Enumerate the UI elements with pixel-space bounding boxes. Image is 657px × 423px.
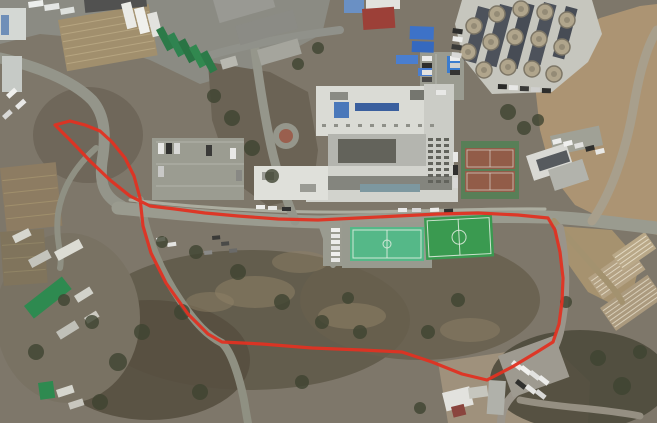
tree <box>342 292 354 304</box>
vehicle <box>422 70 432 75</box>
tree <box>421 325 435 339</box>
tree <box>590 350 606 366</box>
vehicle <box>331 240 340 244</box>
north-wing-windows <box>346 124 350 127</box>
north-wing-windows <box>334 124 338 127</box>
south-wing-teal-band <box>360 184 420 192</box>
vehicle-shape <box>398 208 407 212</box>
building-blue-small-top-shape <box>344 0 364 13</box>
building-west-edge-2 <box>2 56 22 92</box>
vehicle <box>331 252 340 256</box>
east-tower-windows <box>444 156 449 159</box>
vehicle <box>430 208 439 212</box>
vehicle-shape <box>158 166 164 177</box>
building-west-edge-blue-shape <box>1 15 9 35</box>
east-tower-windows <box>436 138 441 141</box>
south-facility-gray-building-shape <box>487 380 506 415</box>
vehicle-shape <box>422 63 432 68</box>
east-tower-windows <box>428 150 433 153</box>
tree <box>192 384 208 400</box>
vehicle <box>204 250 212 255</box>
farm-building-green-small <box>38 381 55 400</box>
soccer-field <box>424 214 494 260</box>
east-tower-windows <box>428 156 433 159</box>
west-wing-unit-2-shape <box>300 184 316 192</box>
field-terrace-west-1-shape <box>0 162 62 232</box>
rooftop-unit-1-shape <box>330 92 348 100</box>
building-west-edge-2-shape <box>2 56 22 92</box>
tree <box>58 294 70 306</box>
vehicle <box>436 90 446 95</box>
vehicle <box>453 152 458 162</box>
tree <box>244 140 260 156</box>
north-wing-windows <box>370 124 374 127</box>
tennis-court-north <box>465 148 515 169</box>
main-building-west-wing <box>254 166 328 200</box>
north-wing-windows <box>418 124 422 127</box>
north-wing-windows <box>382 124 386 127</box>
east-tower-windows <box>436 180 441 183</box>
vehicle-shape <box>331 252 340 256</box>
tree <box>224 110 240 126</box>
vehicle-shape <box>331 234 340 238</box>
tree <box>295 375 309 389</box>
building-blue-roof-2-shape <box>412 41 434 53</box>
vehicle-shape <box>422 77 432 82</box>
vehicle <box>450 70 460 75</box>
tree <box>353 325 367 339</box>
tree <box>92 394 108 410</box>
east-tower-windows <box>444 144 449 147</box>
courtyard-dark <box>338 139 396 163</box>
storage-tank-center <box>529 66 535 72</box>
vehicle-shape <box>422 56 432 61</box>
vehicle <box>282 207 291 211</box>
storage-tank-center <box>488 39 494 45</box>
storage-tank-center <box>512 34 518 40</box>
storage-tank-center <box>564 17 570 23</box>
tree <box>156 236 168 248</box>
vehicle <box>158 166 164 177</box>
vehicle-shape <box>453 165 458 175</box>
vehicle-shape <box>206 145 212 156</box>
east-tower-windows <box>436 162 441 165</box>
tree <box>109 353 127 371</box>
parking-lot-main-shape <box>152 138 244 200</box>
vehicle <box>166 143 172 154</box>
rooftop-solar-strip <box>355 103 399 111</box>
vehicle <box>422 77 432 82</box>
vehicle <box>331 258 340 262</box>
vehicle <box>256 205 265 209</box>
vehicle <box>331 228 340 232</box>
south-facility-gray-building <box>487 380 506 415</box>
building-red-roof-shape <box>362 7 395 30</box>
vehicle-shape <box>331 246 340 250</box>
satellite-image <box>0 0 657 423</box>
east-tower-windows <box>444 168 449 171</box>
east-tower-windows <box>436 144 441 147</box>
east-tower-windows <box>444 138 449 141</box>
vehicle <box>422 56 432 61</box>
vehicle-shape <box>498 84 507 89</box>
east-tower-windows <box>444 180 449 183</box>
vehicle-shape <box>256 205 265 209</box>
vehicle-shape <box>331 240 340 244</box>
tree <box>312 42 324 54</box>
vehicle-shape <box>436 90 446 95</box>
tree <box>292 58 304 70</box>
parking-lot-main <box>152 138 244 200</box>
storage-tank-center <box>471 23 477 29</box>
east-tower-windows <box>444 150 449 153</box>
tree <box>134 324 150 340</box>
building-west-edge-blue <box>1 15 9 35</box>
vehicle <box>221 241 229 246</box>
tree <box>230 264 246 280</box>
east-tower-windows <box>428 144 433 147</box>
vehicle-shape <box>430 208 439 212</box>
rooftop-unit-1 <box>330 92 348 100</box>
building-blue-small-top <box>344 0 364 13</box>
vehicle-shape <box>520 86 529 91</box>
storage-tank-center <box>536 36 542 42</box>
vehicle-shape <box>531 87 540 92</box>
aerial-photo <box>0 0 657 423</box>
storage-tank-center <box>505 64 511 70</box>
vehicle-shape <box>331 228 340 232</box>
vehicle <box>398 208 407 212</box>
vehicle <box>206 145 212 156</box>
east-tower-windows <box>436 168 441 171</box>
south-wing-teal-band-shape <box>360 184 420 192</box>
storage-tank-center <box>518 6 524 12</box>
vehicle <box>230 148 236 159</box>
vehicle-shape <box>229 248 237 253</box>
storage-tank-center <box>551 71 557 77</box>
dry-grass-patch-5 <box>440 318 500 342</box>
north-wing-windows <box>394 124 398 127</box>
vehicle <box>498 84 507 89</box>
vehicle-shape <box>221 241 229 246</box>
east-tower-windows <box>436 174 441 177</box>
tree <box>189 245 203 259</box>
dry-grass-patch-3 <box>272 251 328 273</box>
tree <box>85 315 99 329</box>
vehicle-shape <box>282 207 291 211</box>
vehicle <box>236 170 242 181</box>
courtyard-dark-shape <box>338 139 396 163</box>
building-blue-roof-1 <box>410 26 434 40</box>
storage-tank-center <box>559 44 565 50</box>
tennis-court-south <box>465 171 515 192</box>
tree <box>28 344 44 360</box>
north-wing-windows <box>322 124 326 127</box>
building-blue-roof-1-shape <box>410 26 434 40</box>
building-red-roof <box>362 7 395 30</box>
tree <box>532 114 544 126</box>
vehicle <box>412 208 421 212</box>
tree <box>315 315 329 329</box>
east-tower-windows <box>444 174 449 177</box>
rooftop-solar-square <box>334 102 349 118</box>
vehicle <box>331 234 340 238</box>
storage-tank-center <box>542 9 548 15</box>
vehicle <box>229 248 237 253</box>
vehicle <box>450 63 460 68</box>
vehicle-shape <box>542 88 551 93</box>
tree <box>274 294 290 310</box>
storage-tank-center <box>465 49 471 55</box>
vehicle <box>520 86 529 91</box>
vehicle-shape <box>453 178 458 188</box>
north-wing-windows <box>358 124 362 127</box>
building-blue-roof-2 <box>412 41 434 53</box>
east-tower-windows <box>428 174 433 177</box>
vehicle <box>453 165 458 175</box>
vehicle-shape <box>509 85 518 90</box>
vehicle-shape <box>450 63 460 68</box>
tree <box>414 402 426 414</box>
blue-canopy-1-shape <box>396 55 418 64</box>
futsal-court <box>350 227 424 261</box>
vehicle-shape <box>230 148 236 159</box>
vehicle <box>331 246 340 250</box>
roundabout-garden <box>279 129 293 143</box>
tree <box>613 377 631 395</box>
farm-building-green-small-shape <box>38 381 55 400</box>
rooftop-solar-strip-shape <box>355 103 399 111</box>
tree <box>265 169 279 183</box>
east-tower-windows <box>444 162 449 165</box>
north-wing-windows <box>430 124 434 127</box>
vehicle <box>531 87 540 92</box>
blue-canopy-1 <box>396 55 418 64</box>
east-tower-windows <box>428 162 433 165</box>
vehicle-shape <box>268 206 277 210</box>
tree <box>207 89 221 103</box>
east-tower-windows <box>428 138 433 141</box>
tree <box>517 121 531 135</box>
vehicle-shape <box>212 235 220 240</box>
vehicle-shape <box>236 170 242 181</box>
vehicle-shape <box>158 143 164 154</box>
vehicle <box>174 143 180 154</box>
field-terrace-west-1 <box>0 162 62 232</box>
vehicle-shape <box>204 250 212 255</box>
west-wing-unit-2 <box>300 184 316 192</box>
vehicle-shape <box>174 143 180 154</box>
east-tower-windows <box>436 156 441 159</box>
vehicle-shape <box>450 70 460 75</box>
vehicle <box>212 235 220 240</box>
vehicle <box>158 143 164 154</box>
vehicle <box>422 63 432 68</box>
vehicle-shape <box>453 152 458 162</box>
vehicle-shape <box>412 208 421 212</box>
tree <box>633 345 647 359</box>
east-tower-windows <box>428 168 433 171</box>
tree <box>451 293 465 307</box>
vehicle-shape <box>422 70 432 75</box>
tree <box>500 104 516 120</box>
vehicle <box>268 206 277 210</box>
dry-grass-patch-4 <box>186 292 234 312</box>
vehicle-shape <box>166 143 172 154</box>
vehicle <box>453 178 458 188</box>
vehicle-shape <box>331 258 340 262</box>
vehicle <box>542 88 551 93</box>
north-wing-windows <box>406 124 410 127</box>
storage-tank-center <box>481 67 487 73</box>
main-building-west-wing-shape <box>254 166 328 200</box>
east-tower-windows <box>428 180 433 183</box>
storage-tank-center <box>494 11 500 17</box>
vehicle <box>509 85 518 90</box>
east-tower-windows <box>436 150 441 153</box>
rooftop-solar-square-shape <box>334 102 349 118</box>
